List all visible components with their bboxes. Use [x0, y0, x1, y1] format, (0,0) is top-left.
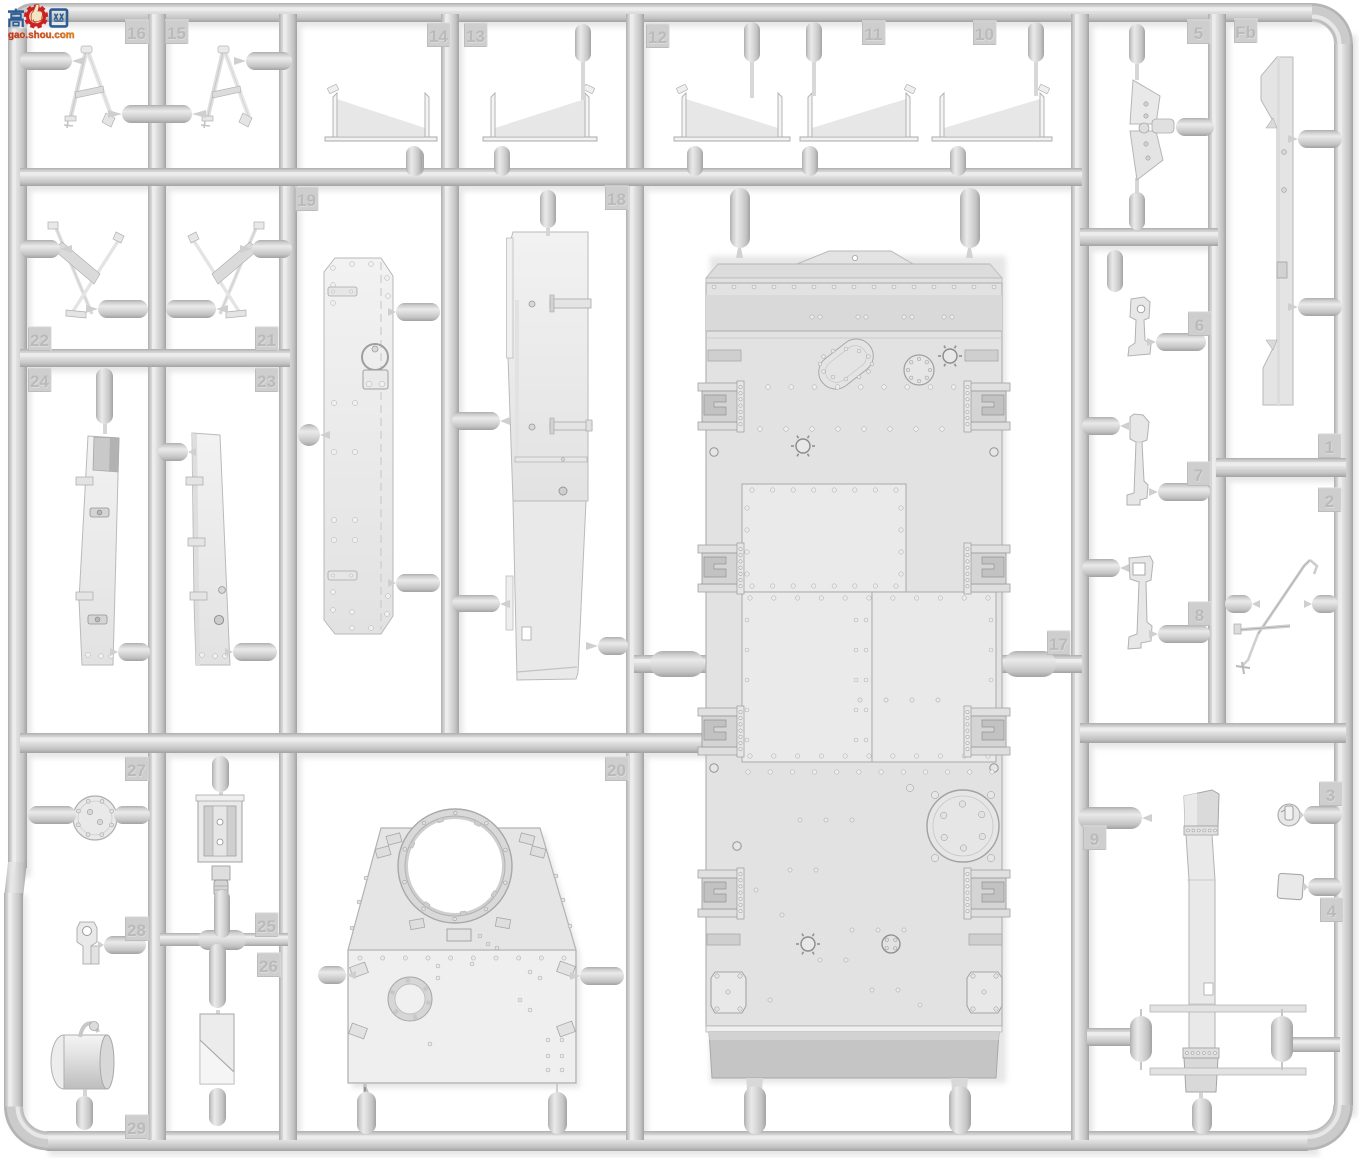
svg-text:11: 11	[865, 25, 883, 44]
svg-text:22: 22	[30, 331, 49, 350]
svg-text:21: 21	[257, 331, 276, 350]
svg-text:20: 20	[607, 761, 626, 780]
svg-text:7: 7	[1194, 466, 1203, 485]
svg-text:17: 17	[1049, 635, 1068, 654]
svg-text:12: 12	[648, 28, 667, 47]
svg-text:26: 26	[259, 957, 278, 976]
svg-text:3: 3	[1326, 786, 1335, 805]
svg-text:8: 8	[1195, 606, 1204, 625]
svg-text:16: 16	[127, 24, 146, 43]
svg-text:24: 24	[30, 372, 49, 391]
svg-text:27: 27	[127, 761, 146, 780]
svg-text:25: 25	[257, 917, 276, 936]
svg-text:2: 2	[1325, 492, 1334, 511]
svg-text:1: 1	[1325, 438, 1334, 457]
svg-text:14: 14	[429, 27, 448, 46]
svg-text:5: 5	[1194, 24, 1203, 43]
svg-text:28: 28	[127, 921, 146, 940]
svg-text:Fb: Fb	[1235, 23, 1256, 42]
svg-text:29: 29	[127, 1119, 146, 1138]
svg-text:6: 6	[1195, 316, 1204, 335]
svg-text:4: 4	[1327, 902, 1337, 921]
svg-text:9: 9	[1090, 830, 1099, 849]
svg-text:18: 18	[607, 190, 626, 209]
svg-text:10: 10	[975, 25, 994, 44]
svg-text:19: 19	[297, 191, 316, 210]
svg-text:23: 23	[257, 372, 276, 391]
svg-text:15: 15	[167, 24, 186, 43]
svg-text:13: 13	[466, 27, 485, 46]
svg-text:gao.shou.com: gao.shou.com	[8, 30, 75, 41]
